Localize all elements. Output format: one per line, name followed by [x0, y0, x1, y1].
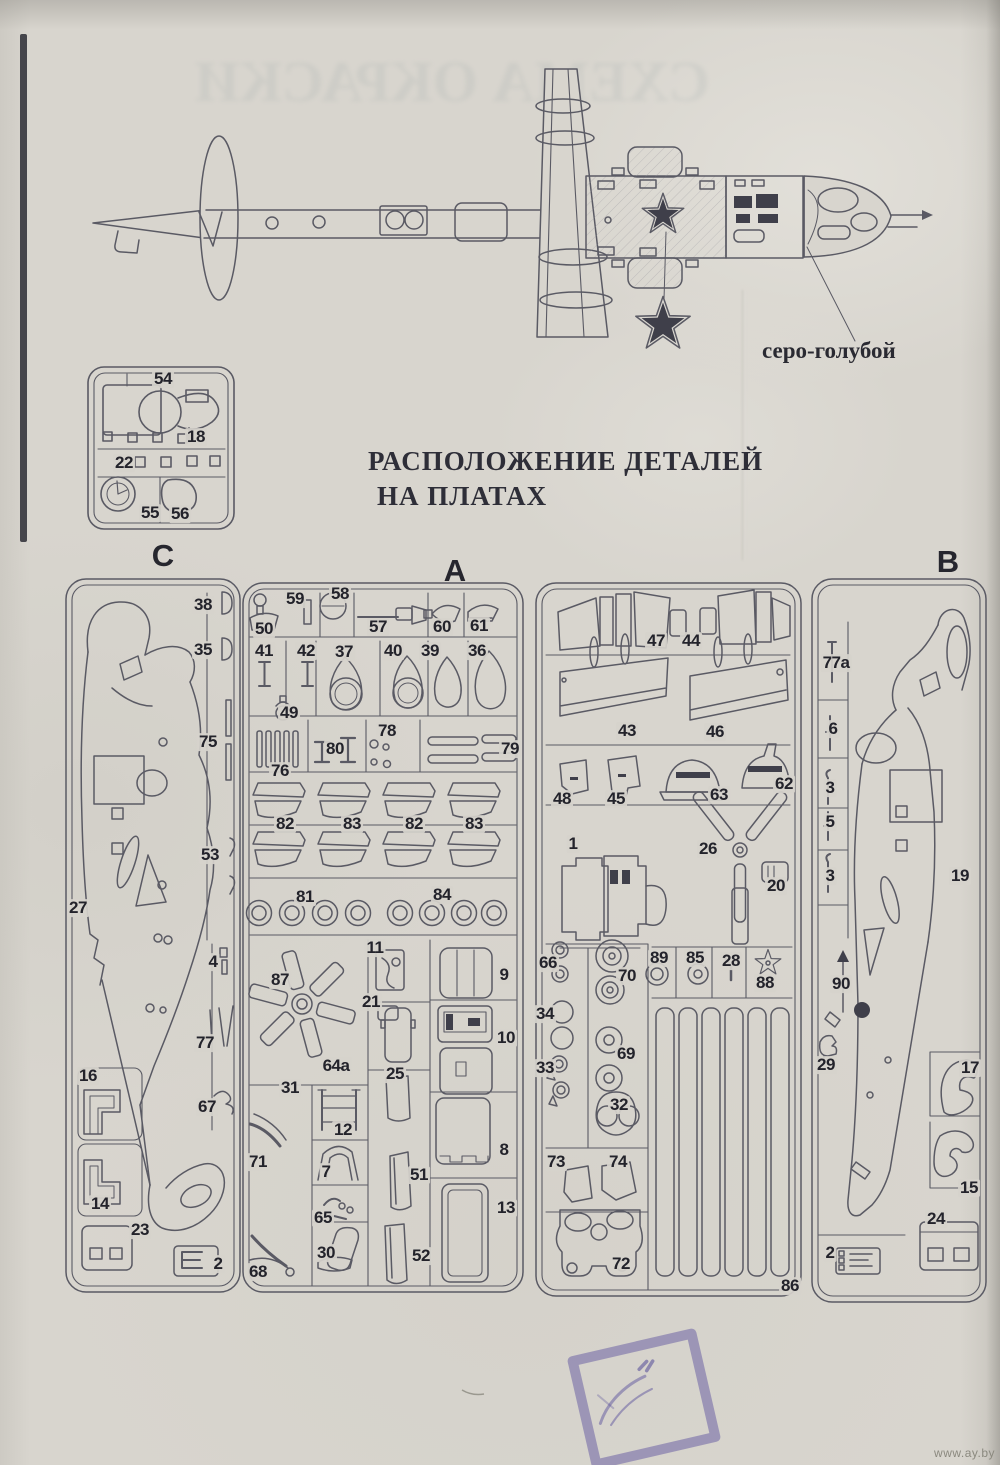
part-label-16: 16 [77, 1067, 99, 1085]
part-label-49: 49 [278, 704, 300, 722]
part-label-28: 28 [720, 952, 742, 970]
part-label-29: 29 [815, 1056, 837, 1074]
part-label-23: 23 [129, 1221, 151, 1239]
part-label-15: 15 [958, 1179, 980, 1197]
part-label-72: 72 [610, 1255, 632, 1273]
part-label-2: 2 [212, 1255, 225, 1273]
part-label-4: 4 [207, 953, 220, 971]
part-label-52: 52 [410, 1247, 432, 1265]
part-label-79: 79 [499, 740, 521, 758]
part-label-87: 87 [269, 971, 291, 989]
part-label-58: 58 [329, 585, 351, 603]
part-label-22: 22 [113, 454, 135, 472]
part-label-68: 68 [247, 1263, 269, 1281]
part-label-3: 3 [824, 867, 837, 885]
part-label-62: 62 [773, 775, 795, 793]
part-label-12: 12 [332, 1121, 354, 1139]
part-label-44: 44 [680, 632, 702, 650]
part-label-64a: 64a [321, 1057, 352, 1075]
part-label-88: 88 [754, 974, 776, 992]
part-label-53: 53 [199, 846, 221, 864]
part-label-14: 14 [89, 1195, 111, 1213]
part-label-70: 70 [616, 967, 638, 985]
part-label-39: 39 [419, 642, 441, 660]
part-label-21: 21 [360, 993, 382, 1011]
part-label-25: 25 [384, 1065, 406, 1083]
part-label-65: 65 [312, 1209, 334, 1227]
part-label-84: 84 [431, 886, 453, 904]
part-label-6: 6 [827, 720, 840, 738]
part-label-45: 45 [605, 790, 627, 808]
part-label-5: 5 [824, 813, 837, 831]
part-label-34: 34 [534, 1005, 556, 1023]
part-label-48: 48 [551, 790, 573, 808]
part-label-55: 55 [139, 504, 161, 522]
part-label-46: 46 [704, 723, 726, 741]
part-label-35: 35 [192, 641, 214, 659]
part-label-43: 43 [616, 722, 638, 740]
part-label-51: 51 [408, 1166, 430, 1184]
part-label-74: 74 [607, 1153, 629, 1171]
part-label-47: 47 [645, 632, 667, 650]
part-label-37: 37 [333, 643, 355, 661]
part-label-54: 54 [152, 370, 174, 388]
part-label-26: 26 [697, 840, 719, 858]
part-label-80: 80 [324, 740, 346, 758]
part-label-8: 8 [498, 1141, 511, 1159]
part-label-7: 7 [320, 1163, 333, 1181]
part-label-78: 78 [376, 722, 398, 740]
part-label-41: 41 [253, 642, 275, 660]
part-label-73: 73 [545, 1153, 567, 1171]
part-label-71: 71 [247, 1153, 269, 1171]
part-label-33: 33 [534, 1059, 556, 1077]
watermark: www.ay.by [934, 1446, 995, 1460]
part-label-85: 85 [684, 949, 706, 967]
part-label-83: 83 [463, 815, 485, 833]
part-label-82: 82 [403, 815, 425, 833]
part-label-56: 56 [169, 505, 191, 523]
part-label-2: 2 [824, 1244, 837, 1262]
part-label-9: 9 [498, 966, 511, 984]
part-label-67: 67 [196, 1098, 218, 1116]
part-label-32: 32 [608, 1096, 630, 1114]
part-label-20: 20 [765, 877, 787, 895]
instruction-sheet-page: СХЕМА ОКРАСКИ [0, 0, 1000, 1465]
part-label-24: 24 [925, 1210, 947, 1228]
part-label-57: 57 [367, 618, 389, 636]
part-label-82: 82 [274, 815, 296, 833]
part-label-19: 19 [949, 867, 971, 885]
part-label-69: 69 [615, 1045, 637, 1063]
part-label-31: 31 [279, 1079, 301, 1097]
part-label-77a: 77a [821, 654, 852, 672]
part-label-76: 76 [269, 762, 291, 780]
part-label-59: 59 [284, 590, 306, 608]
part-label-11: 11 [365, 939, 386, 957]
part-label-75: 75 [197, 733, 219, 751]
part-label-89: 89 [648, 949, 670, 967]
part-label-60: 60 [431, 618, 453, 636]
part-label-61: 61 [468, 617, 490, 635]
part-label-40: 40 [382, 642, 404, 660]
part-number-labels: 5418225556383575532747767161423259505857… [0, 0, 1000, 1465]
part-label-10: 10 [495, 1029, 517, 1047]
part-label-86: 86 [779, 1277, 801, 1295]
part-label-17: 17 [959, 1059, 981, 1077]
part-label-90: 90 [830, 975, 852, 993]
part-label-63: 63 [708, 786, 730, 804]
part-label-38: 38 [192, 596, 214, 614]
part-label-18: 18 [185, 428, 207, 446]
part-label-66: 66 [537, 954, 559, 972]
part-label-3: 3 [824, 779, 837, 797]
part-label-81: 81 [294, 888, 316, 906]
part-label-42: 42 [295, 642, 317, 660]
part-label-83: 83 [341, 815, 363, 833]
part-label-36: 36 [466, 642, 488, 660]
part-label-30: 30 [315, 1244, 337, 1262]
part-label-1: 1 [567, 835, 580, 853]
ink-stamp-scribble [579, 1344, 686, 1439]
part-label-77: 77 [194, 1034, 216, 1052]
part-label-50: 50 [253, 620, 275, 638]
part-label-13: 13 [495, 1199, 517, 1217]
part-label-27: 27 [67, 899, 89, 917]
